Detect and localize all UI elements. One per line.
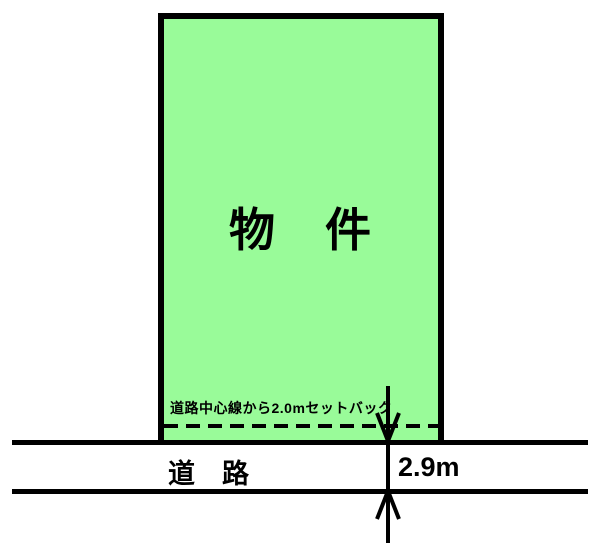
- road-width-label: 2.9m: [398, 452, 460, 483]
- road-upper-edge-line: [12, 440, 588, 445]
- road-label: 道 路: [168, 452, 249, 491]
- arrow-up-icon: [377, 491, 399, 519]
- setback-note: 道路中心線から2.0mセットバック: [170, 398, 392, 418]
- setback-dashed-line: [164, 424, 438, 428]
- road-lower-edge-line: [12, 489, 588, 494]
- diagram-canvas: 物 件 道路中心線から2.0mセットバック 道 路 2.9m: [0, 0, 600, 553]
- property-label: 物 件: [158, 203, 444, 258]
